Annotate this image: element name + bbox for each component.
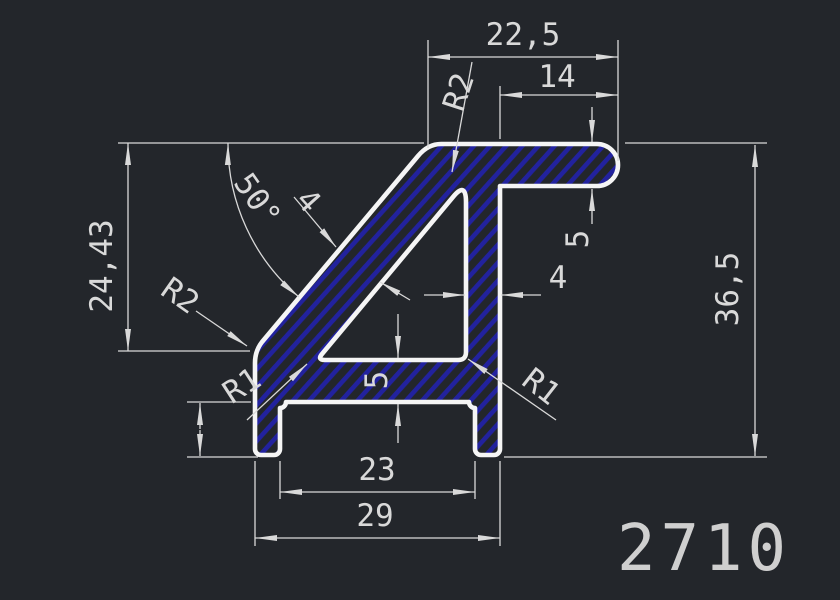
dim-label-base-thickness: 5 [359, 371, 395, 390]
dim-label-arm-length: 14 [538, 59, 575, 95]
dim-label-outer-width: 29 [356, 498, 393, 534]
dim-label-left-height: 24,43 [84, 219, 120, 312]
dim-label-overall-height: 36,5 [710, 252, 746, 327]
cad-drawing-viewport: 22,5 14 24,43 36,5 23 29 5 5 4 4 50° R2 … [0, 0, 840, 600]
dim-label-top-width: 22,5 [486, 17, 561, 53]
dim-label-inner-width: 23 [358, 452, 395, 488]
dim-label-arm-thickness: 5 [560, 230, 596, 249]
drawing-canvas: 22,5 14 24,43 36,5 23 29 5 5 4 4 50° R2 … [0, 0, 840, 600]
dim-label-web-thickness: 4 [549, 260, 568, 296]
part-number: 2710 [617, 512, 791, 586]
